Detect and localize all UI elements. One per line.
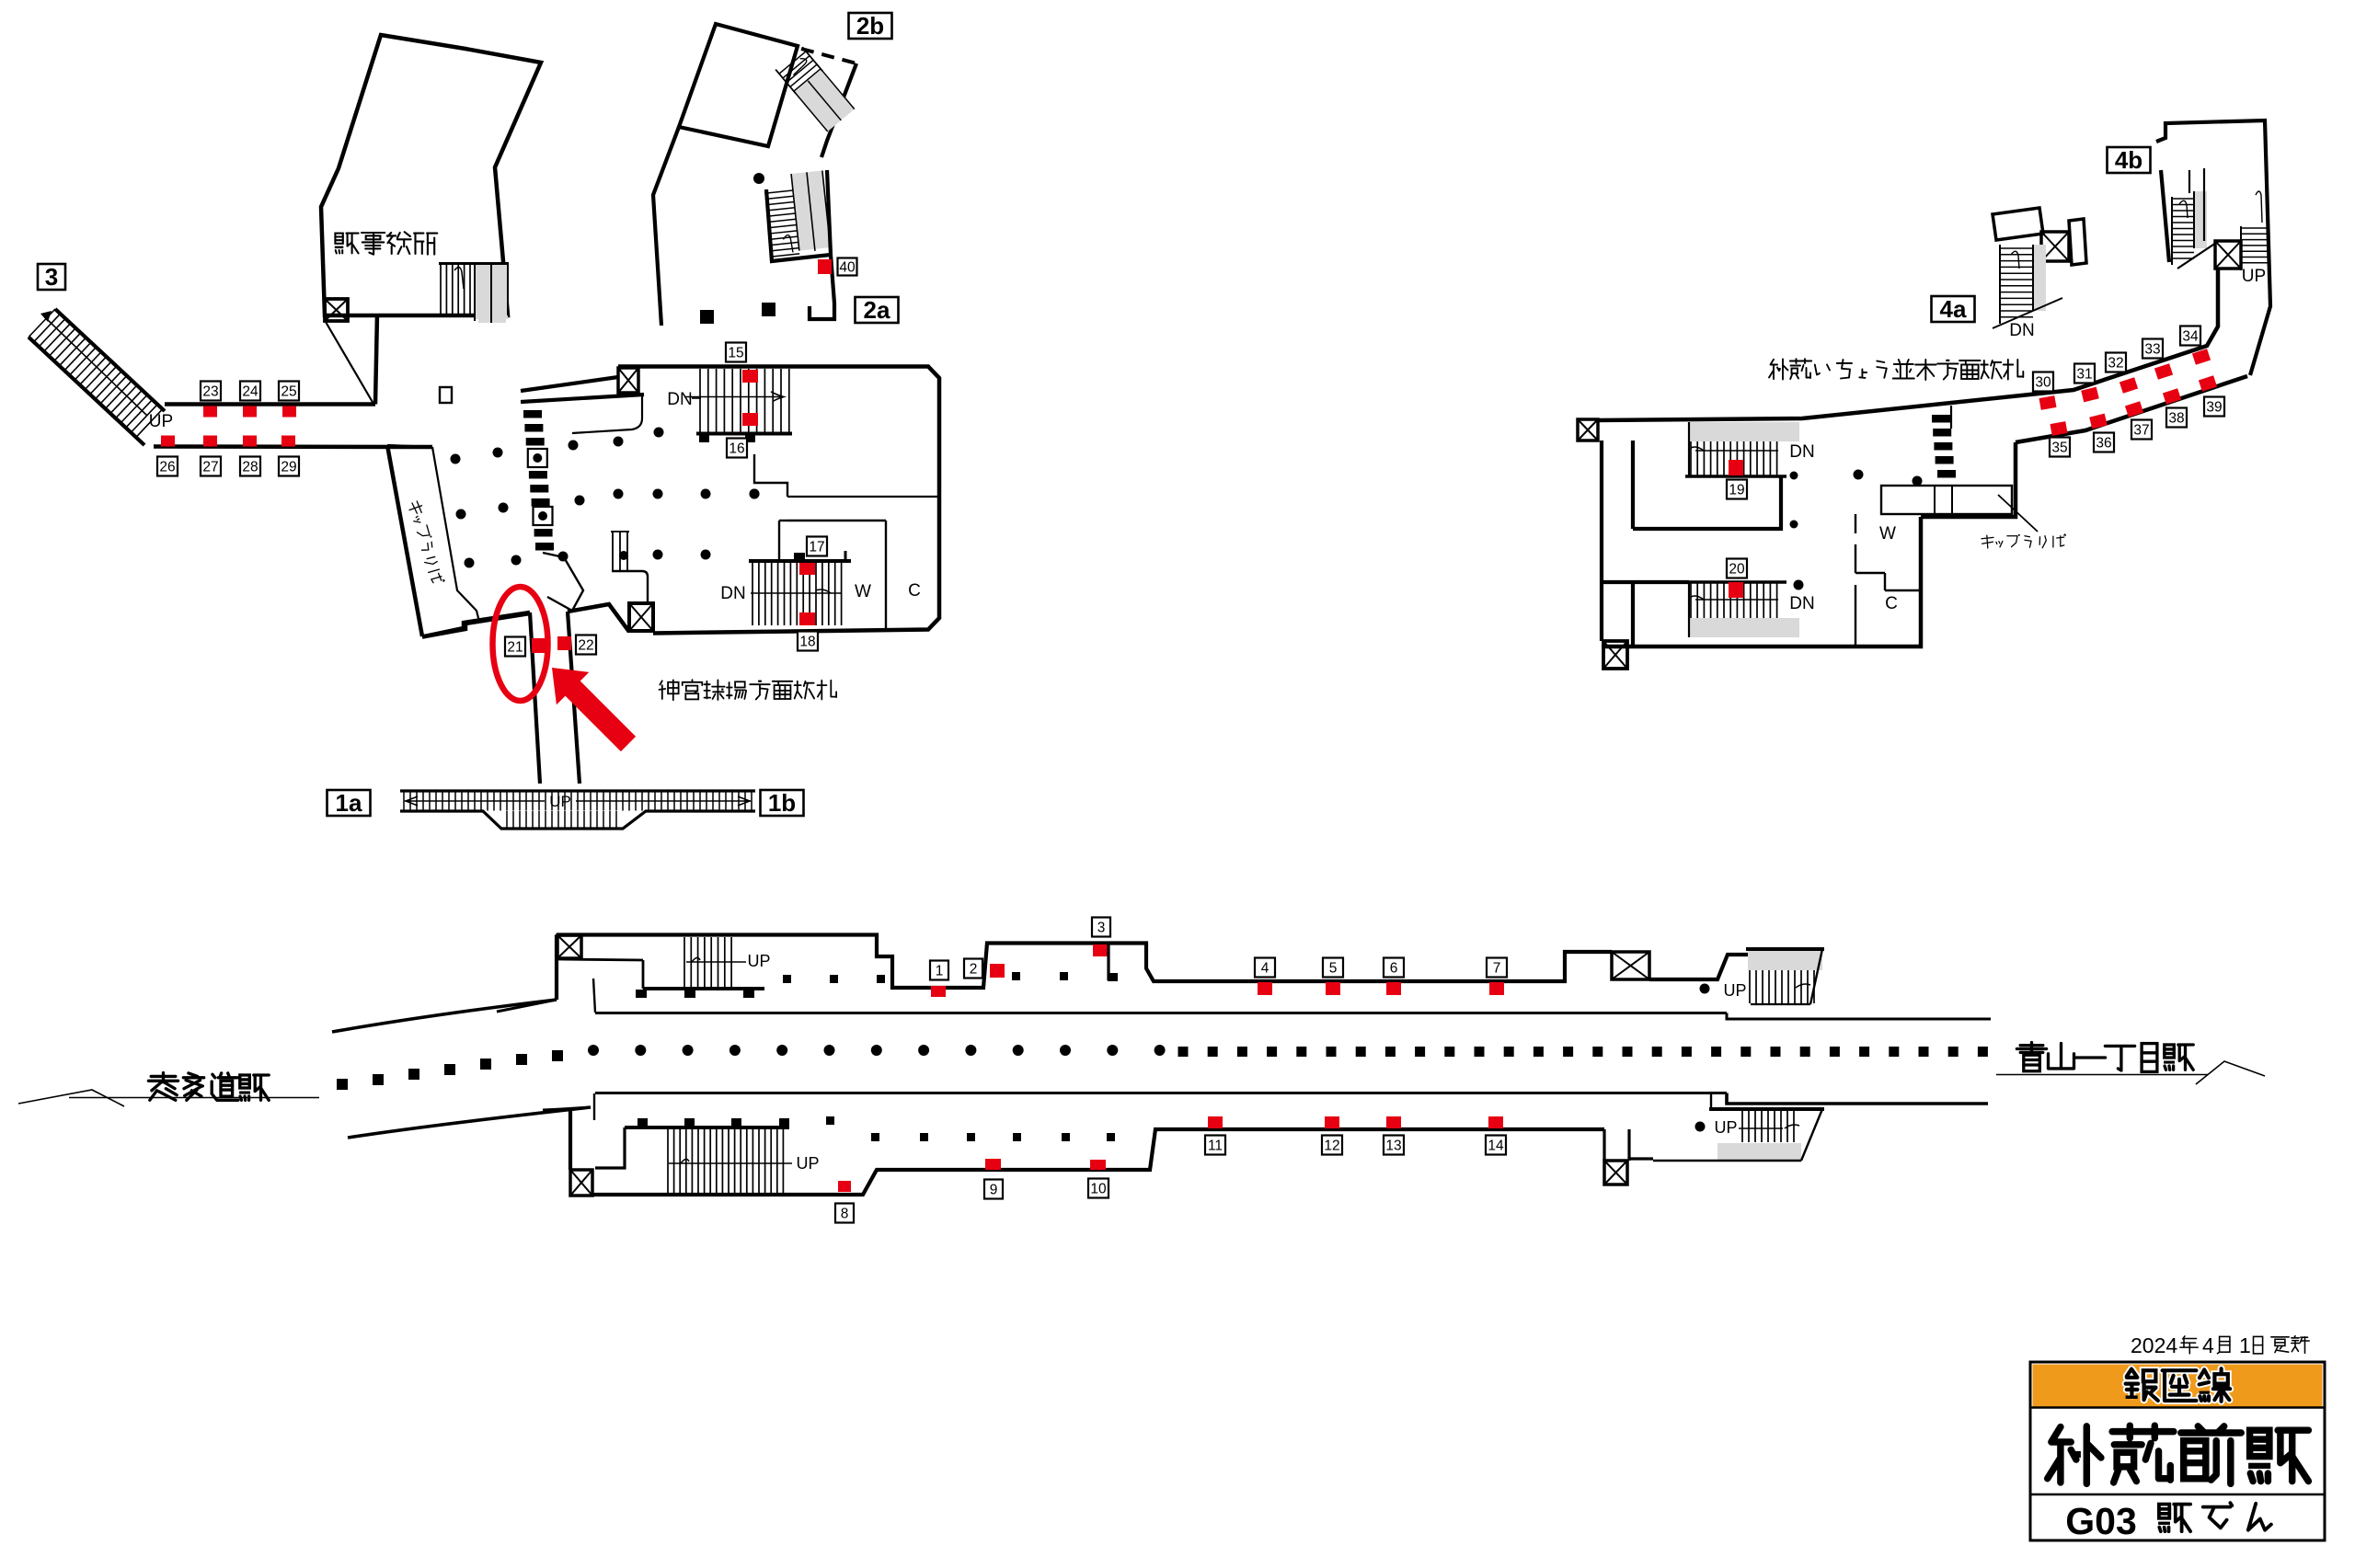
svg-text:21: 21 <box>507 640 523 656</box>
svg-text:3: 3 <box>1097 921 1106 936</box>
svg-text:34: 34 <box>2182 329 2199 345</box>
svg-text:1: 1 <box>936 964 944 979</box>
svg-text:4: 4 <box>1261 961 1269 977</box>
svg-text:30: 30 <box>2035 375 2051 391</box>
svg-text:26: 26 <box>159 460 175 475</box>
svg-text:13: 13 <box>1385 1139 1401 1154</box>
svg-text:C: C <box>908 581 921 601</box>
svg-text:W: W <box>1879 524 1896 544</box>
svg-text:16: 16 <box>729 441 744 457</box>
svg-text:39: 39 <box>2206 400 2222 416</box>
svg-text:40: 40 <box>839 260 856 276</box>
svg-text:36: 36 <box>2096 436 2111 452</box>
svg-text:2024: 2024 <box>2131 1333 2177 1357</box>
svg-text:20: 20 <box>1729 562 1745 578</box>
svg-text:37: 37 <box>2133 423 2149 439</box>
svg-text:9: 9 <box>990 1183 998 1198</box>
svg-text:15: 15 <box>728 346 743 361</box>
svg-text:35: 35 <box>2051 441 2067 456</box>
svg-text:14: 14 <box>1488 1139 1504 1154</box>
svg-text:DN: DN <box>1789 594 1814 613</box>
svg-text:32: 32 <box>2108 356 2123 372</box>
svg-text:2b: 2b <box>856 12 884 40</box>
svg-text:10: 10 <box>1090 1182 1107 1197</box>
svg-text:11: 11 <box>1208 1139 1223 1154</box>
svg-text:28: 28 <box>242 460 258 475</box>
svg-text:W: W <box>855 582 871 601</box>
svg-text:38: 38 <box>2168 411 2184 427</box>
svg-text:27: 27 <box>202 460 218 475</box>
svg-text:24: 24 <box>242 384 258 400</box>
svg-text:8: 8 <box>841 1207 849 1222</box>
svg-text:DN: DN <box>720 584 745 603</box>
svg-text:23: 23 <box>202 384 218 400</box>
svg-text:22: 22 <box>578 638 593 654</box>
svg-text:29: 29 <box>281 460 296 475</box>
svg-text:1b: 1b <box>768 789 796 817</box>
svg-text:25: 25 <box>281 384 296 400</box>
svg-text:2: 2 <box>970 962 978 978</box>
svg-text:UP: UP <box>149 412 173 431</box>
svg-text:4b: 4b <box>2115 146 2142 174</box>
svg-text:4: 4 <box>2202 1333 2214 1357</box>
svg-text:UP: UP <box>1723 981 1746 1000</box>
svg-text:C: C <box>1885 594 1898 613</box>
svg-text:4a: 4a <box>1940 295 1967 323</box>
svg-text:19: 19 <box>1729 483 1744 498</box>
svg-text:7: 7 <box>1493 961 1501 977</box>
svg-text:2a: 2a <box>864 296 890 324</box>
svg-text:5: 5 <box>1329 961 1338 977</box>
svg-text:12: 12 <box>1324 1139 1339 1154</box>
svg-text:6: 6 <box>1390 961 1398 977</box>
svg-text:31: 31 <box>2076 367 2092 383</box>
svg-text:18: 18 <box>799 635 815 650</box>
svg-text:DN: DN <box>2009 321 2034 340</box>
svg-text:UP: UP <box>747 952 770 970</box>
svg-text:1: 1 <box>2239 1333 2251 1357</box>
svg-text:17: 17 <box>809 540 824 555</box>
svg-text:UP: UP <box>1714 1118 1737 1137</box>
svg-text:3: 3 <box>45 263 58 291</box>
svg-text:1a: 1a <box>336 789 362 817</box>
svg-text:33: 33 <box>2144 342 2160 358</box>
svg-text:DN: DN <box>1789 442 1814 462</box>
svg-text:DN: DN <box>667 390 692 409</box>
svg-text:UP: UP <box>796 1154 819 1173</box>
svg-text:UP: UP <box>2242 267 2266 286</box>
svg-text:G03: G03 <box>2065 1500 2137 1542</box>
svg-text:UP: UP <box>549 793 571 810</box>
